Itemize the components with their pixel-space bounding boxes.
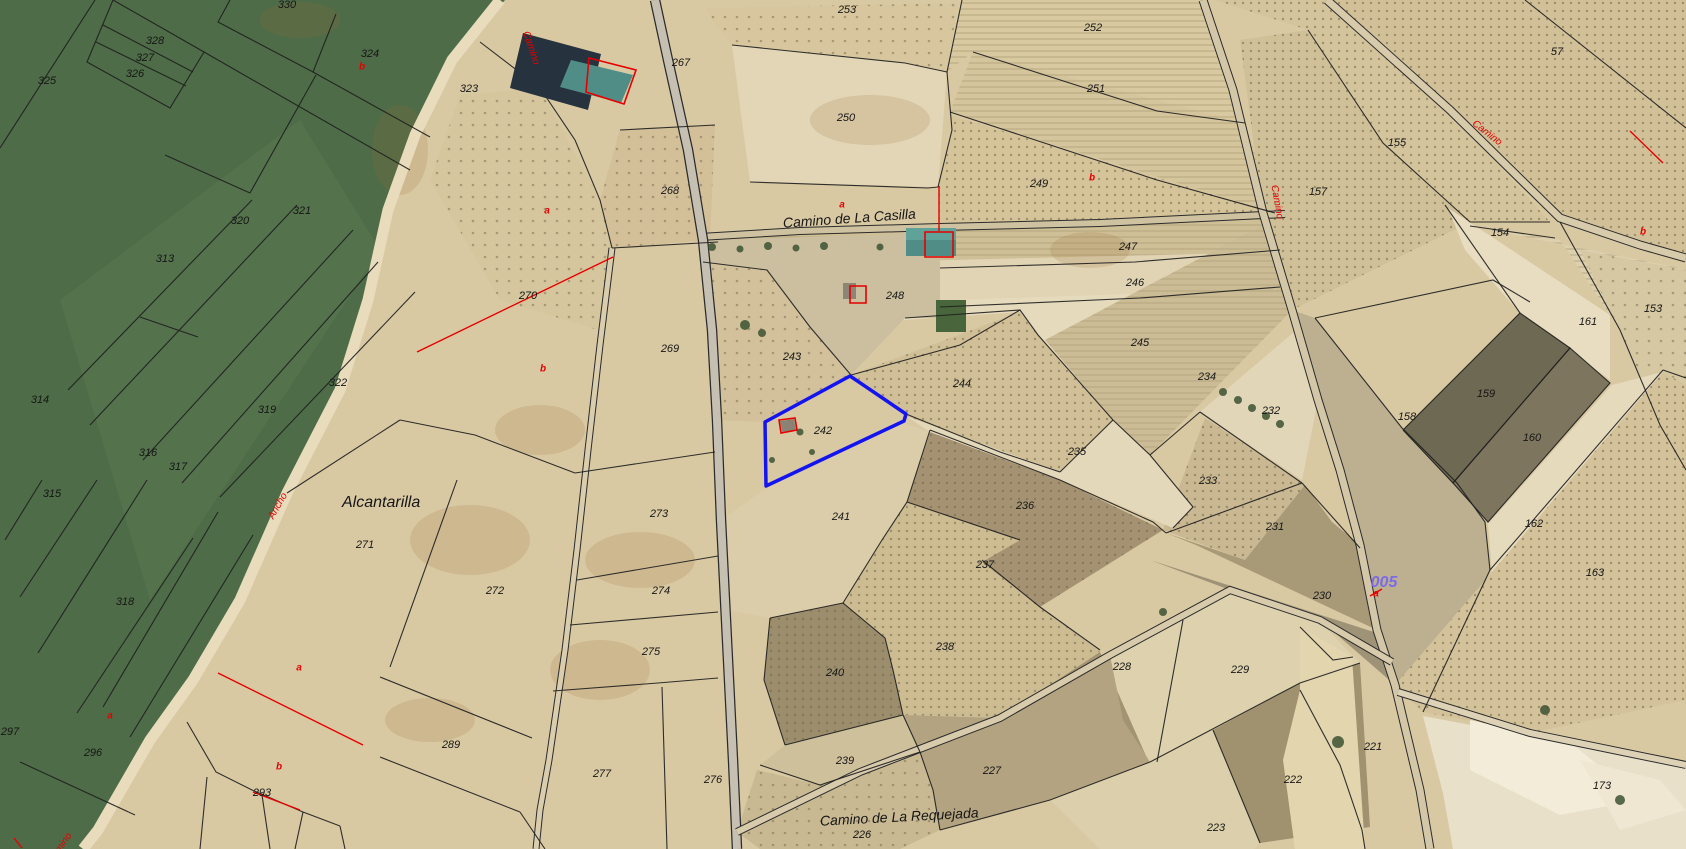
parcel-number-label: 160 xyxy=(1523,432,1542,444)
tree xyxy=(764,242,772,250)
parcel-number-label: 327 xyxy=(136,52,155,64)
parcel-number-label: 269 xyxy=(660,343,679,355)
parcel-number-label: 223 xyxy=(1206,822,1226,834)
parcel-number-label: 153 xyxy=(1644,303,1663,315)
parcel-number-label: 277 xyxy=(592,768,612,780)
parcel-number-label: 250 xyxy=(836,112,856,124)
soil-mark xyxy=(410,505,530,575)
parcel-number-label: 324 xyxy=(361,48,379,60)
building xyxy=(906,228,956,240)
soil-mark xyxy=(260,2,340,38)
parcel-number-label: 242 xyxy=(813,425,832,437)
parcel-number-label: 267 xyxy=(671,57,691,69)
tree xyxy=(769,457,775,463)
cadastral-zone-label: 005 xyxy=(1371,574,1399,591)
parcel-number-label: 313 xyxy=(156,253,175,265)
parcel-number-label: 227 xyxy=(982,765,1002,777)
tree xyxy=(708,243,716,251)
parcel-number-label: 326 xyxy=(126,68,145,80)
road-name-label: Alcantarilla xyxy=(341,494,420,511)
parcel-number-label: 275 xyxy=(641,646,661,658)
parcel-number-label: 323 xyxy=(460,83,479,95)
parcel-number-label: 252 xyxy=(1083,22,1102,34)
parcel-number-label: 244 xyxy=(952,378,971,390)
cadastral-map[interactable]: 3303283273263253243233213203133143163173… xyxy=(0,0,1686,849)
soil-mark xyxy=(585,532,695,588)
soil-mark xyxy=(385,698,475,742)
parcel-number-label: 330 xyxy=(278,0,297,11)
parcel-number-label: 247 xyxy=(1118,241,1138,253)
tree xyxy=(1615,795,1625,805)
parcel-number-label: 163 xyxy=(1586,567,1605,579)
parcel-number-label: 251 xyxy=(1086,83,1105,95)
parcel-number-label: 230 xyxy=(1312,590,1332,602)
parcel-number-label: 234 xyxy=(1197,371,1216,383)
tree xyxy=(1234,396,1242,404)
soil-mark xyxy=(810,95,930,145)
parcel-number-label: 235 xyxy=(1067,446,1087,458)
parcel-number-label: 232 xyxy=(1261,405,1280,417)
parcel-number-label: 161 xyxy=(1579,316,1597,328)
parcel-number-label: 318 xyxy=(116,596,135,608)
parcel-number-label: 236 xyxy=(1015,500,1035,512)
map-viewport[interactable]: 3303283273263253243233213203133143163173… xyxy=(0,0,1686,849)
parcel-number-label: 315 xyxy=(43,488,62,500)
subparcel-letter-label: b xyxy=(1640,227,1646,238)
parcel-number-label: 273 xyxy=(649,508,669,520)
parcel-number-label: 328 xyxy=(146,35,165,47)
subparcel-letter-label: a xyxy=(544,206,550,217)
subparcel-letter-label: a xyxy=(839,200,845,211)
tree xyxy=(1219,388,1227,396)
subparcel-letter-label: b xyxy=(540,364,546,375)
tree xyxy=(820,242,828,250)
subparcel-letter-label: b xyxy=(276,762,282,773)
tree xyxy=(758,329,766,337)
parcel-number-label: 162 xyxy=(1525,518,1543,530)
parcel-number-label: 155 xyxy=(1388,137,1407,149)
tree xyxy=(1276,420,1284,428)
parcel-number-label: 231 xyxy=(1265,521,1284,533)
parcel-number-label: 249 xyxy=(1029,178,1048,190)
parcel-number-label: 274 xyxy=(651,585,670,597)
parcel-number-label: 173 xyxy=(1593,780,1612,792)
parcel-number-label: 229 xyxy=(1230,664,1249,676)
parcel-number-label: 240 xyxy=(825,667,845,679)
parcel-number-label: 226 xyxy=(852,829,872,841)
tree xyxy=(793,245,800,252)
parcel-number-label: 317 xyxy=(169,461,188,473)
subparcel-letter-label: a xyxy=(296,663,302,674)
parcel-number-label: 320 xyxy=(231,215,250,227)
subparcel-letter-label: b xyxy=(359,62,365,73)
parcel-number-label: 228 xyxy=(1112,661,1132,673)
tree xyxy=(1159,608,1167,616)
parcel-number-label: 154 xyxy=(1491,227,1509,239)
parcel-number-label: 319 xyxy=(258,404,276,416)
parcel-number-label: 289 xyxy=(441,739,460,751)
parcel-number-label: 238 xyxy=(935,641,955,653)
parcel-number-label: 246 xyxy=(1125,277,1145,289)
parcel-number-label: 293 xyxy=(252,787,272,799)
parcel-number-label: 237 xyxy=(975,559,995,571)
tree xyxy=(737,246,744,253)
parcel-number-label: 233 xyxy=(1198,475,1218,487)
parcel-number-label: 57 xyxy=(1551,46,1564,58)
parcel-number-label: 239 xyxy=(835,755,854,767)
parcel-number-label: 253 xyxy=(837,4,857,16)
parcel-number-label: 241 xyxy=(831,511,850,523)
parcel-number-label: 322 xyxy=(329,377,347,389)
parcel-number-label: 243 xyxy=(782,351,802,363)
parcel-number-label: 276 xyxy=(703,774,723,786)
parcel-number-label: 297 xyxy=(0,726,20,738)
parcel-number-label: 272 xyxy=(485,585,504,597)
parcel-number-label: 158 xyxy=(1398,411,1417,423)
subparcel-letter-label: b xyxy=(1089,173,1095,184)
tree xyxy=(877,244,884,251)
parcel-number-label: 296 xyxy=(83,747,103,759)
tree xyxy=(809,449,815,455)
parcel-number-label: 316 xyxy=(139,447,158,459)
parcel-number-label: 159 xyxy=(1477,388,1495,400)
tree xyxy=(740,320,750,330)
tree xyxy=(1540,705,1550,715)
tree xyxy=(1248,404,1256,412)
parcel-number-label: 245 xyxy=(1130,337,1150,349)
parcel-number-label: 268 xyxy=(660,185,680,197)
subparcel-letter-label: a xyxy=(107,711,113,722)
parcel-number-label: 222 xyxy=(1283,774,1302,786)
parcel-number-label: 325 xyxy=(38,75,57,87)
parcel-number-label: 271 xyxy=(355,539,374,551)
parcel-number-label: 248 xyxy=(885,290,905,302)
parcel-number-label: 221 xyxy=(1363,741,1382,753)
parcel-number-label: 270 xyxy=(518,290,538,302)
parcel-number-label: 321 xyxy=(293,205,311,217)
parcel-number-label: 314 xyxy=(31,394,49,406)
parcel-number-label: 157 xyxy=(1309,186,1328,198)
tree xyxy=(1332,736,1344,748)
